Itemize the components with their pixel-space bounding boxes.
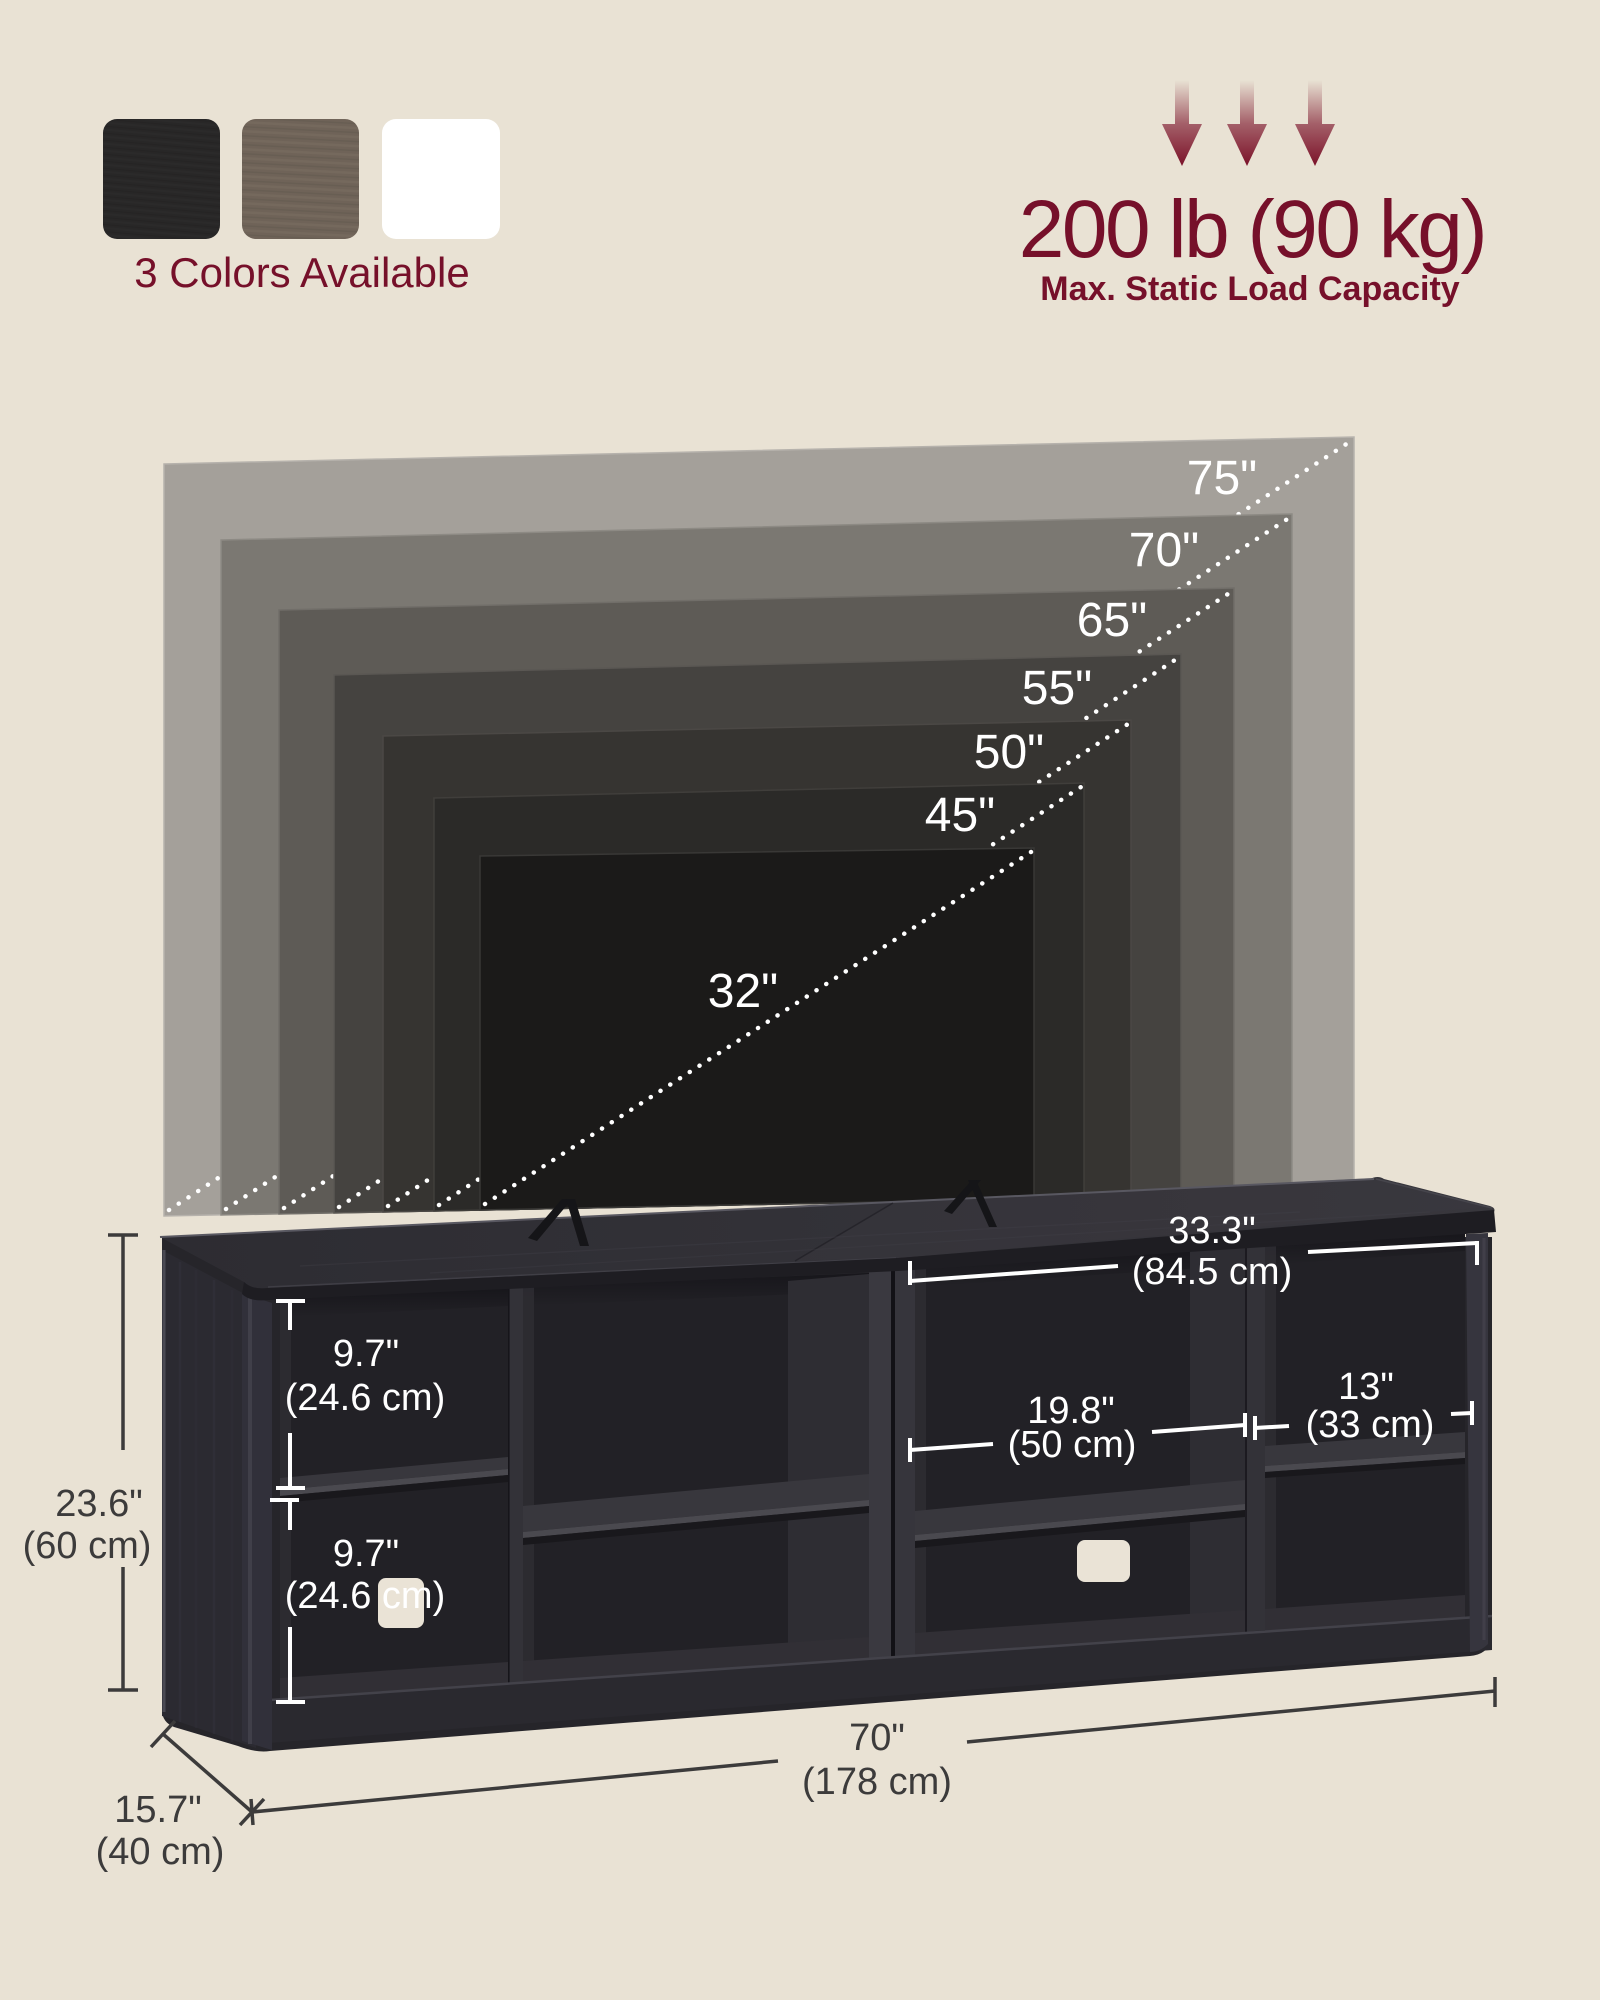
svg-text:(40 cm): (40 cm): [96, 1831, 225, 1873]
svg-text:75": 75": [1187, 452, 1257, 505]
svg-text:15.7": 15.7": [114, 1789, 201, 1831]
svg-text:13": 13": [1338, 1366, 1394, 1408]
svg-text:23.6": 23.6": [55, 1483, 142, 1525]
svg-text:50": 50": [974, 726, 1044, 779]
svg-text:9.7": 9.7": [333, 1533, 399, 1575]
svg-text:(60 cm): (60 cm): [23, 1525, 152, 1567]
svg-text:Max. Static Load Capacity: Max. Static Load Capacity: [1040, 270, 1460, 308]
svg-text:65": 65": [1077, 594, 1147, 647]
svg-text:9.7": 9.7": [333, 1333, 399, 1375]
svg-text:55": 55": [1022, 662, 1092, 715]
svg-text:(33 cm): (33 cm): [1306, 1404, 1435, 1446]
svg-text:(24.6 cm): (24.6 cm): [285, 1377, 445, 1419]
svg-text:200 lb (90 kg): 200 lb (90 kg): [1019, 184, 1485, 275]
svg-text:70": 70": [849, 1717, 905, 1759]
svg-text:33.3": 33.3": [1168, 1210, 1255, 1252]
svg-text:32": 32": [708, 965, 778, 1018]
svg-text:(178 cm): (178 cm): [802, 1761, 952, 1803]
svg-text:(50 cm): (50 cm): [1008, 1424, 1137, 1466]
svg-text:(84.5 cm): (84.5 cm): [1132, 1251, 1292, 1293]
svg-text:45": 45": [925, 789, 995, 842]
svg-text:3 Colors Available: 3 Colors Available: [134, 249, 469, 296]
svg-text:(24.6 cm): (24.6 cm): [285, 1575, 445, 1617]
svg-text:70": 70": [1129, 524, 1199, 577]
